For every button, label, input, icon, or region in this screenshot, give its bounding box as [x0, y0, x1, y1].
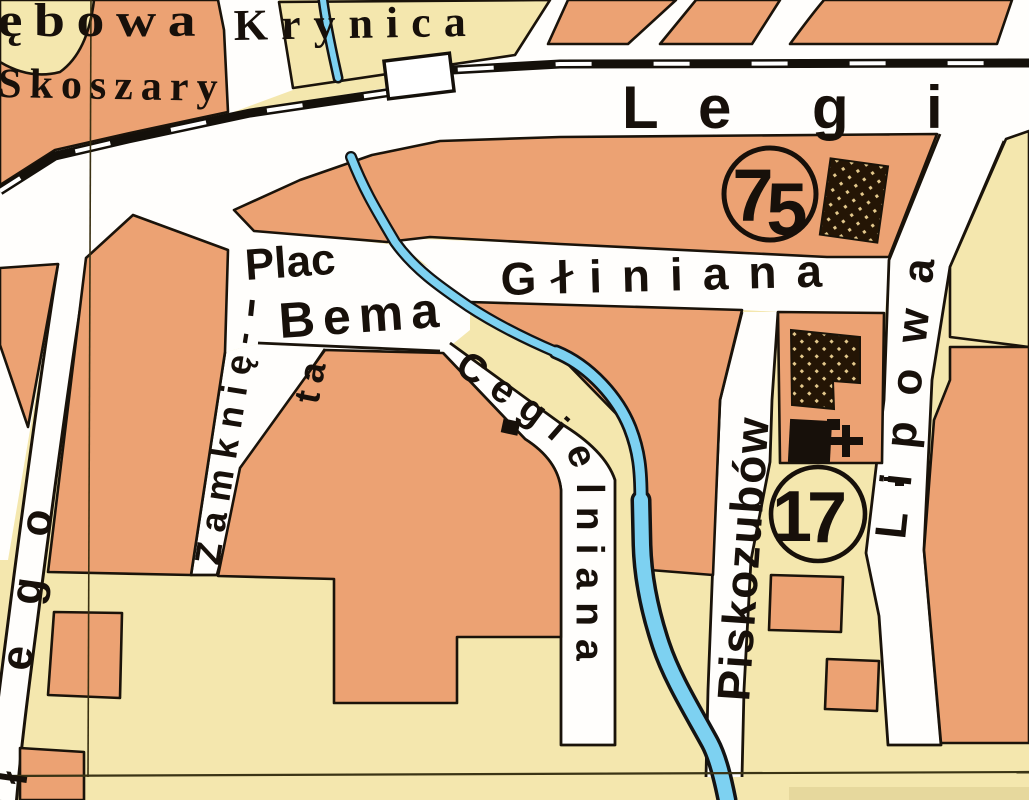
svg-text:L: L — [622, 74, 659, 141]
svg-text:e: e — [698, 74, 731, 141]
svg-text:i: i — [926, 74, 943, 141]
svg-text:Krynica: Krynica — [233, 0, 479, 50]
svg-text:Gliniana: Gliniana — [500, 244, 843, 305]
svg-text:Bema: Bema — [277, 281, 449, 349]
svg-text:5: 5 — [766, 168, 807, 251]
svg-text:7: 7 — [807, 478, 847, 558]
svg-text:Skoszary: Skoszary — [0, 61, 226, 111]
svg-text:Plac: Plac — [243, 235, 337, 290]
svg-text:g: g — [812, 74, 849, 141]
svg-text:ębowa: ębowa — [0, 0, 207, 47]
